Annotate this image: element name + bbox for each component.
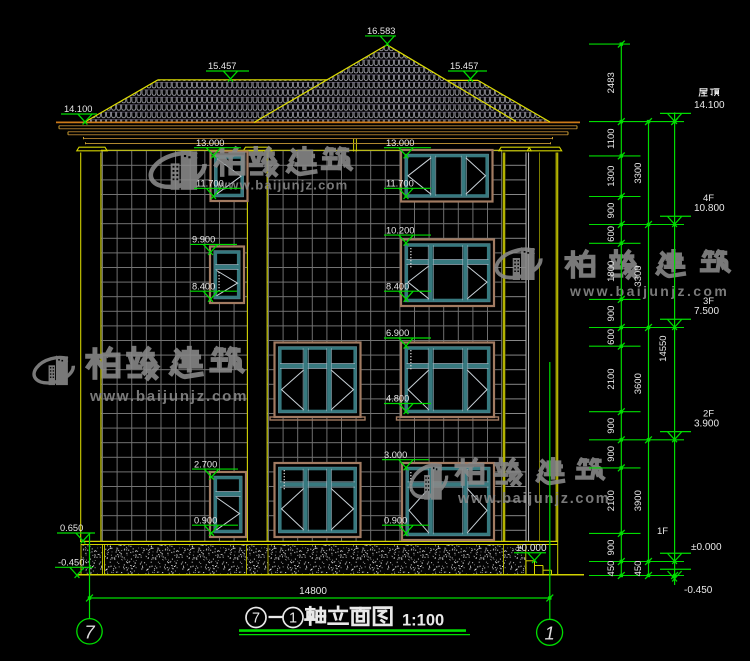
svg-text:10.200: 10.200 xyxy=(386,225,414,235)
svg-text:2100: 2100 xyxy=(606,368,617,389)
svg-text:3300: 3300 xyxy=(633,163,644,184)
svg-text:1800: 1800 xyxy=(606,261,617,282)
svg-text:16.583: 16.583 xyxy=(367,26,395,36)
svg-text:3.900: 3.900 xyxy=(694,418,719,429)
svg-text:0.900: 0.900 xyxy=(384,515,407,525)
svg-text:450: 450 xyxy=(633,561,644,577)
svg-text:3900: 3900 xyxy=(633,490,644,511)
svg-text:14.100: 14.100 xyxy=(694,100,725,111)
svg-text:0.650: 0.650 xyxy=(60,523,83,533)
svg-text:8.400: 8.400 xyxy=(192,281,215,291)
svg-text:9.900: 9.900 xyxy=(192,235,215,245)
svg-text:14.100: 14.100 xyxy=(64,104,92,114)
svg-text:11.700: 11.700 xyxy=(196,179,224,189)
svg-text:7: 7 xyxy=(252,611,260,627)
svg-text:600: 600 xyxy=(606,226,617,242)
svg-text:15.457: 15.457 xyxy=(208,61,236,71)
svg-text:6.900: 6.900 xyxy=(386,328,409,338)
svg-text:1F: 1F xyxy=(657,526,668,537)
svg-text:2.700: 2.700 xyxy=(194,459,217,469)
svg-text:900: 900 xyxy=(606,540,617,556)
svg-text:3.000: 3.000 xyxy=(384,450,407,460)
svg-text:www.baijunjz.com: www.baijunjz.com xyxy=(216,178,348,193)
svg-text:4.800: 4.800 xyxy=(386,394,409,404)
svg-text:900: 900 xyxy=(606,446,617,462)
svg-text:900: 900 xyxy=(606,418,617,434)
svg-text:600: 600 xyxy=(606,329,617,345)
svg-text:1100: 1100 xyxy=(606,128,617,148)
svg-text:-0.450: -0.450 xyxy=(684,585,713,596)
svg-text:0.900: 0.900 xyxy=(194,515,217,525)
svg-text:1:100: 1:100 xyxy=(402,612,444,630)
svg-text:7.500: 7.500 xyxy=(694,306,719,317)
svg-text:www.baijunjz.com: www.baijunjz.com xyxy=(457,491,610,507)
svg-text:3300: 3300 xyxy=(633,265,644,286)
svg-text:14550: 14550 xyxy=(658,335,669,361)
svg-text:900: 900 xyxy=(606,306,617,322)
svg-text:3600: 3600 xyxy=(633,373,644,394)
svg-text:13.000: 13.000 xyxy=(196,138,224,148)
svg-text:2100: 2100 xyxy=(606,490,617,511)
svg-text:14800: 14800 xyxy=(299,586,327,597)
svg-text:www.baijunjz.com: www.baijunjz.com xyxy=(89,388,248,405)
svg-text:10.800: 10.800 xyxy=(694,203,725,214)
svg-text:450: 450 xyxy=(606,561,617,577)
svg-text:11.700: 11.700 xyxy=(386,179,414,189)
svg-text:1: 1 xyxy=(544,622,554,643)
svg-text:±0.000: ±0.000 xyxy=(691,542,722,553)
svg-text:-0.450: -0.450 xyxy=(58,558,84,568)
svg-text:1: 1 xyxy=(289,611,297,627)
svg-text:2483: 2483 xyxy=(606,72,617,93)
svg-text:8.400: 8.400 xyxy=(386,281,409,291)
svg-text:15.457: 15.457 xyxy=(450,61,478,71)
svg-text:7: 7 xyxy=(84,621,95,642)
svg-text:900: 900 xyxy=(606,203,617,219)
svg-text:1300: 1300 xyxy=(606,166,617,187)
svg-text:13.000: 13.000 xyxy=(386,138,414,148)
